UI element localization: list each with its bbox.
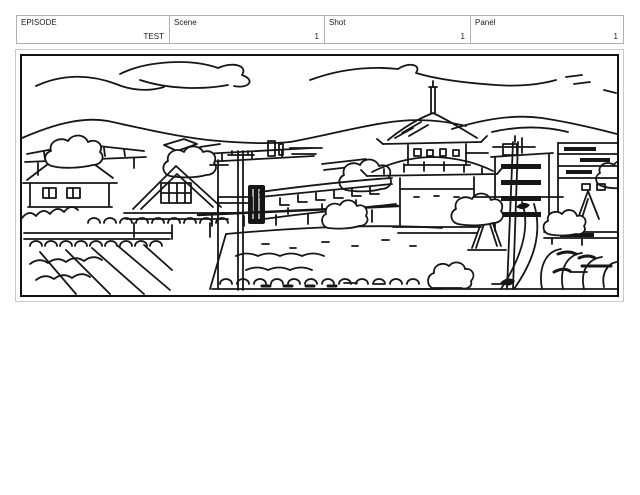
header-cell-scene: Scene 1 (169, 16, 324, 43)
panel-label: Panel (475, 18, 495, 27)
shot-label: Shot (329, 18, 345, 27)
townscape-line-art (22, 56, 617, 295)
header-cell-panel: Panel 1 (470, 16, 623, 43)
shot-value: 1 (461, 32, 465, 41)
episode-value: TEST (144, 32, 164, 41)
panel-value: 1 (614, 32, 618, 41)
storyboard-sheet: EPISODE TEST Scene 1 Shot 1 Panel 1 (0, 0, 640, 495)
header-cell-shot: Shot 1 (324, 16, 470, 43)
scene-value: 1 (315, 32, 319, 41)
storyboard-drawing (20, 54, 619, 297)
scene-label: Scene (174, 18, 197, 27)
header-table: EPISODE TEST Scene 1 Shot 1 Panel 1 (16, 15, 624, 44)
header-cell-episode: EPISODE TEST (17, 16, 169, 43)
storyboard-panel (15, 49, 624, 302)
episode-label: EPISODE (21, 18, 57, 27)
